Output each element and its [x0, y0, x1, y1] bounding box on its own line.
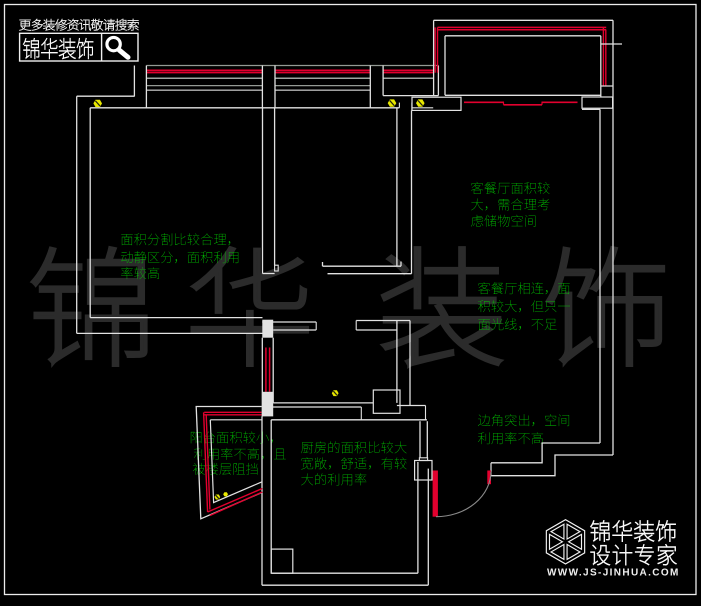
svg-text:WWW.JS-JINHUA.COM: WWW.JS-JINHUA.COM [547, 568, 680, 579]
